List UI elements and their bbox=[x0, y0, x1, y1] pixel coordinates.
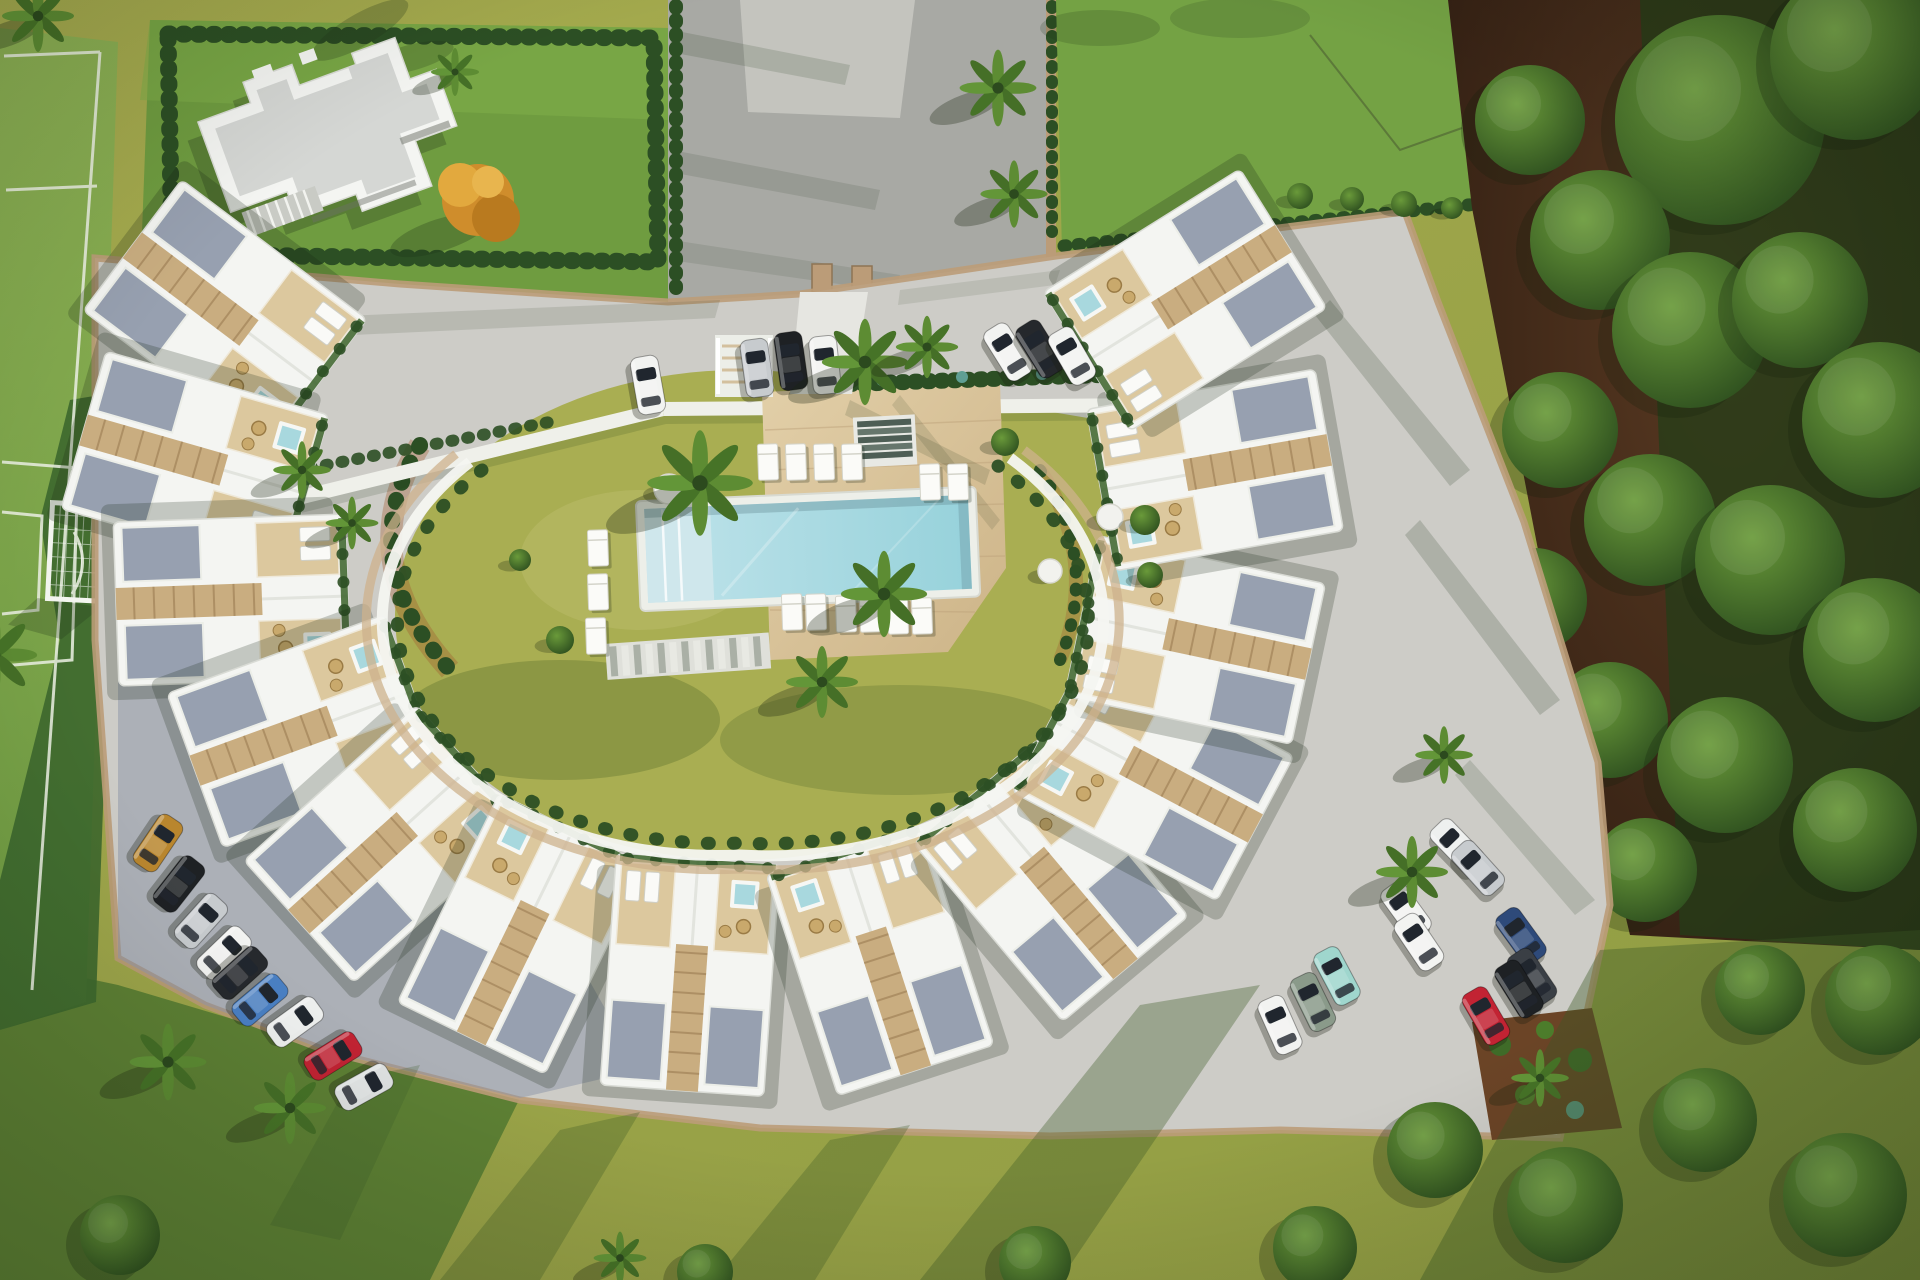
scene-svg bbox=[0, 0, 1920, 1280]
vignette bbox=[0, 0, 1920, 1280]
aerial-render bbox=[0, 0, 1920, 1280]
